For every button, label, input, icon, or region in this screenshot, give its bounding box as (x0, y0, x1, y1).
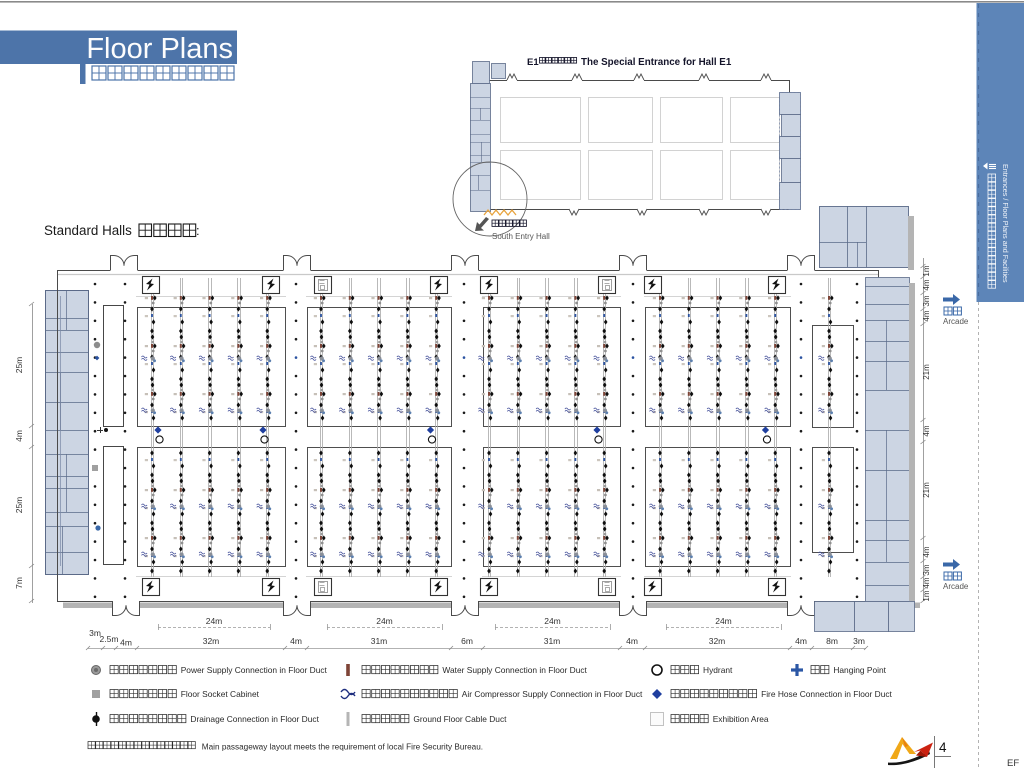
svg-text:4m: 4m (922, 425, 931, 436)
svg-text:Hanging Point: Hanging Point (833, 665, 886, 675)
svg-text:31m: 31m (371, 636, 388, 646)
svg-text:South Entry Hall: South Entry Hall (492, 232, 550, 241)
svg-text:Exhibition Area: Exhibition Area (713, 714, 769, 724)
svg-text:Entrances / Floor Plans and Fa: Entrances / Floor Plans and Facilities (1001, 164, 1010, 283)
svg-text:Air Compressor Supply Connecti: Air Compressor Supply Connection in Floo… (462, 689, 643, 699)
svg-text:Ground Floor Cable Duct: Ground Floor Cable Duct (413, 714, 507, 724)
svg-text:4m: 4m (120, 638, 132, 648)
svg-text:4m: 4m (922, 546, 931, 557)
svg-text:3m: 3m (922, 564, 931, 575)
svg-text:Drainage Connection in Floor D: Drainage Connection in Floor Duct (190, 714, 319, 724)
svg-text:25m: 25m (14, 497, 24, 514)
svg-text:32m: 32m (709, 636, 726, 646)
svg-text:Floor Socket Cabinet: Floor Socket Cabinet (181, 689, 260, 699)
svg-text:24m: 24m (544, 616, 561, 626)
svg-text:3m: 3m (922, 295, 931, 306)
svg-text::: : (196, 223, 200, 238)
svg-text:4m: 4m (626, 636, 638, 646)
svg-text:6m: 6m (461, 636, 473, 646)
svg-text:Main passageway layout meets t: Main passageway layout meets the require… (202, 743, 483, 752)
svg-text:21m: 21m (922, 364, 931, 380)
svg-text:21m: 21m (922, 482, 931, 498)
svg-text:24m: 24m (206, 616, 223, 626)
svg-text:Water Supply Connection in Flo: Water Supply Connection in Floor Duct (442, 665, 587, 675)
svg-text:E1: E1 (527, 57, 539, 68)
svg-text:Arcade: Arcade (943, 317, 969, 326)
svg-text:4m: 4m (290, 636, 302, 646)
svg-text:3m: 3m (853, 636, 865, 646)
svg-text:Power Supply Connection in Flo: Power Supply Connection in Floor Duct (181, 665, 328, 675)
svg-text:31m: 31m (544, 636, 561, 646)
svg-text:25m: 25m (14, 357, 24, 374)
svg-text:1m: 1m (922, 590, 931, 601)
svg-text:Arcade: Arcade (943, 582, 969, 591)
svg-text:The Special Entrance for Hall: The Special Entrance for Hall E1 (581, 57, 732, 68)
svg-text:Standard Halls: Standard Halls (44, 223, 132, 238)
svg-text:2.5m: 2.5m (100, 634, 119, 644)
svg-text:7m: 7m (14, 577, 24, 589)
svg-text:32m: 32m (203, 636, 220, 646)
svg-text:4m: 4m (922, 279, 931, 290)
svg-text:4m: 4m (922, 577, 931, 588)
svg-text:EF: EF (1007, 758, 1019, 768)
svg-text:Hydrant: Hydrant (703, 665, 733, 675)
svg-text:Fire Hose Connection in Floor: Fire Hose Connection in Floor Duct (761, 689, 892, 699)
svg-text:24m: 24m (376, 616, 393, 626)
svg-text:4: 4 (939, 740, 947, 755)
svg-text:8m: 8m (826, 636, 838, 646)
svg-text:Floor Plans: Floor Plans (86, 33, 233, 65)
svg-text:24m: 24m (715, 616, 732, 626)
svg-text:4m: 4m (14, 430, 24, 442)
svg-text:4m: 4m (795, 636, 807, 646)
svg-text:1m: 1m (922, 265, 931, 276)
svg-text:4m: 4m (922, 310, 931, 321)
